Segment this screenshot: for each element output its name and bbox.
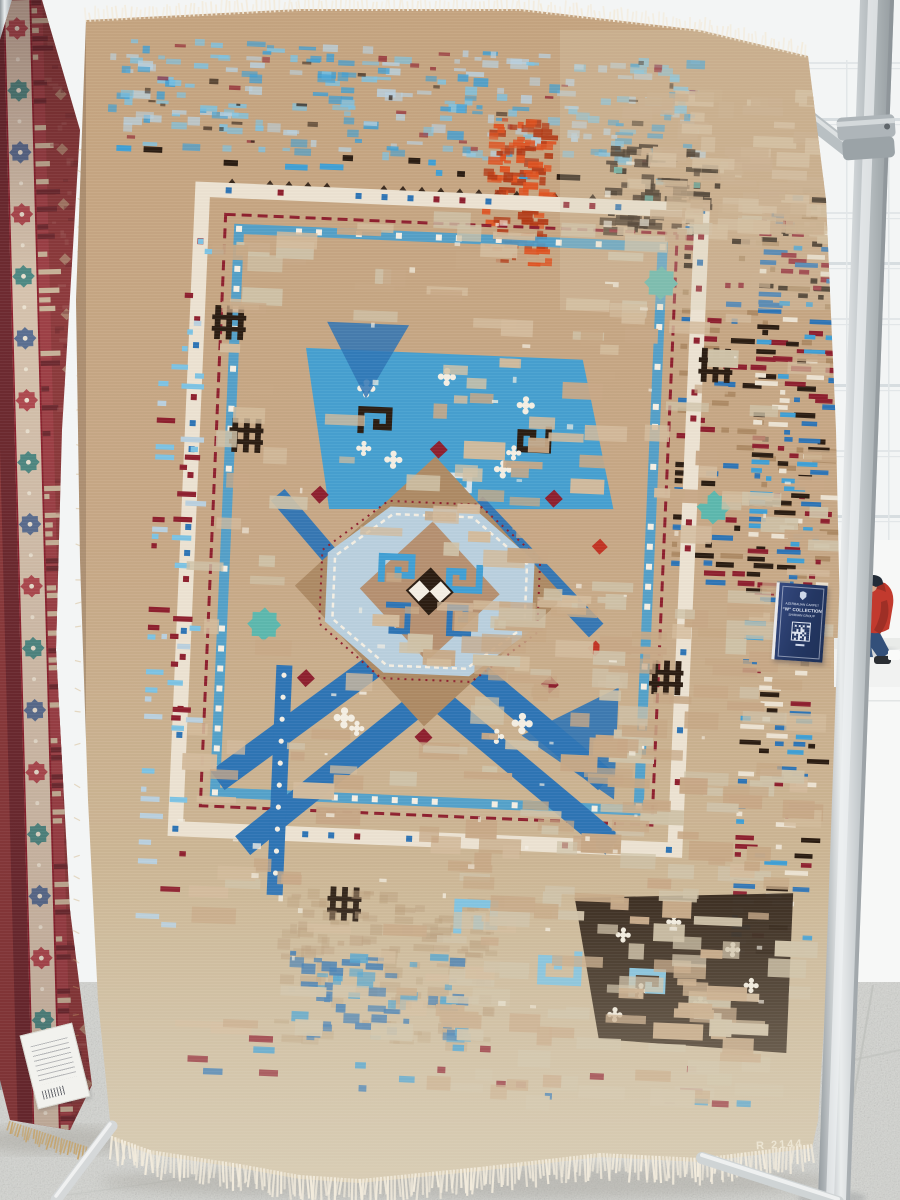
qr-code-icon <box>790 621 810 641</box>
exhibition-photo: R 2144 AZERBAIJAN CARPET “W” COLLECTION … <box>0 0 900 1200</box>
photo-canvas: R 2144 <box>0 0 900 1200</box>
label-line-2: “W” COLLECTION <box>782 607 821 613</box>
tag-emblem-icon <box>799 591 807 600</box>
main-carpet <box>50 0 864 1200</box>
label-tag-face: AZERBAIJAN CARPET “W” COLLECTION SHIRVAN… <box>778 586 825 660</box>
label-footer-mark <box>795 644 804 647</box>
label-line-1: AZERBAIJAN CARPET <box>785 602 819 606</box>
woven-signature: R 2144 <box>756 1138 804 1152</box>
label-line-3: SHIRVAN GROUP <box>788 613 815 617</box>
carpet-label-tag: AZERBAIJAN CARPET “W” COLLECTION SHIRVAN… <box>771 582 827 662</box>
